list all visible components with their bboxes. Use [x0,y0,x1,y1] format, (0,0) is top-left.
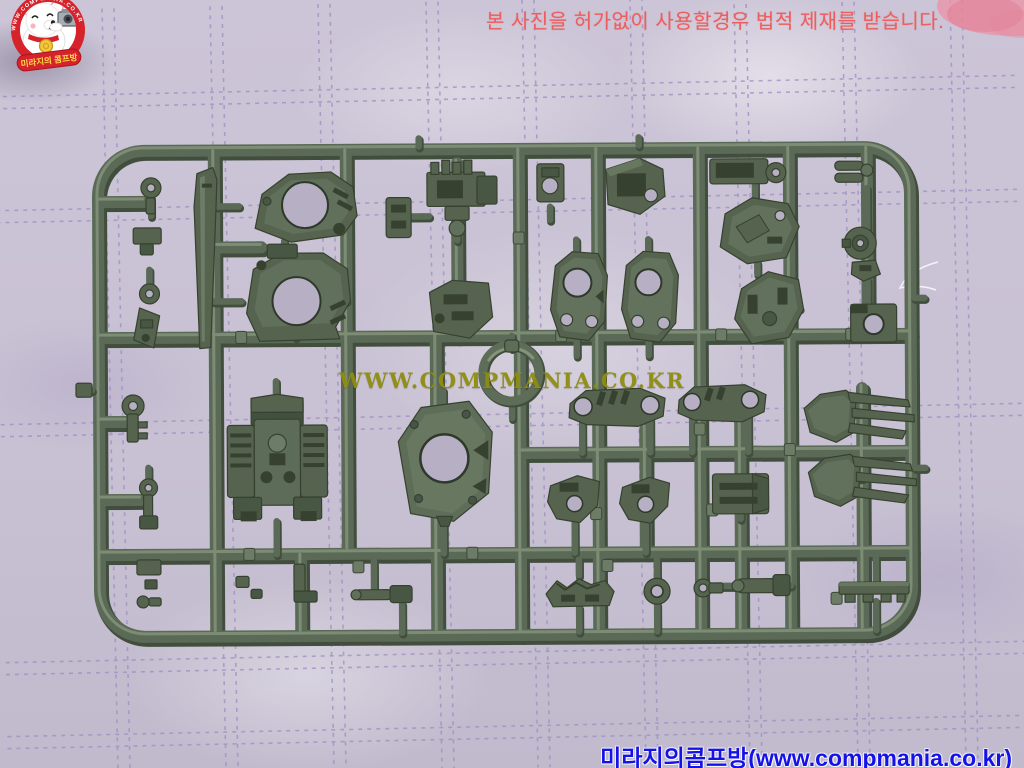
part-small-ring-mid [139,284,159,304]
part-torso-block [227,394,328,522]
pink-blur-object [937,0,1024,38]
part-housing-d [550,251,607,340]
part-housing-c [429,280,492,338]
part-small-block-left [137,560,161,608]
part-small-bracket-left [133,228,161,255]
part-faceted-plate-k [720,197,799,263]
site-credit-text: 미라지의콤프방(www.compmania.co.kr) [600,739,1012,768]
photo-stage: 본 사진을 허가없이 사용할경우 법적 제재를 받습니다. WWW.COMPMA… [0,0,1024,768]
part-round-housing-a [255,172,357,243]
compmania-logo: WWW.COMPMANIA.CO.KR [4,0,94,77]
part-piston [351,586,412,603]
part-small-column [386,198,411,238]
part-outside-frame-left [76,383,92,397]
mascot-logo-icon: WWW.COMPMANIA.CO.KR [4,0,94,77]
part-tray [710,159,786,184]
watermark-text: WWW.COMPMANIA.CO.KR [339,368,685,393]
part-link-f [569,388,665,427]
part-link-g [678,385,766,422]
part-boat-shaped [546,578,614,606]
part-tiny-bits-bottom [236,564,317,602]
bear-medal-icon [40,40,53,53]
part-eyelet [694,579,723,597]
part-slotted-box [712,474,768,514]
part-thick-ring [644,578,670,604]
part-hex-plate [398,401,493,526]
part-small-bracket-top [537,164,564,202]
part-angled-box [606,158,665,214]
copyright-warning-text: 본 사진을 허가없이 사용할경우 법적 제재를 받습니다. [486,5,944,34]
part-bracket-i [619,477,669,523]
part-square-plate [851,304,897,342]
part-housing-e [621,251,678,342]
